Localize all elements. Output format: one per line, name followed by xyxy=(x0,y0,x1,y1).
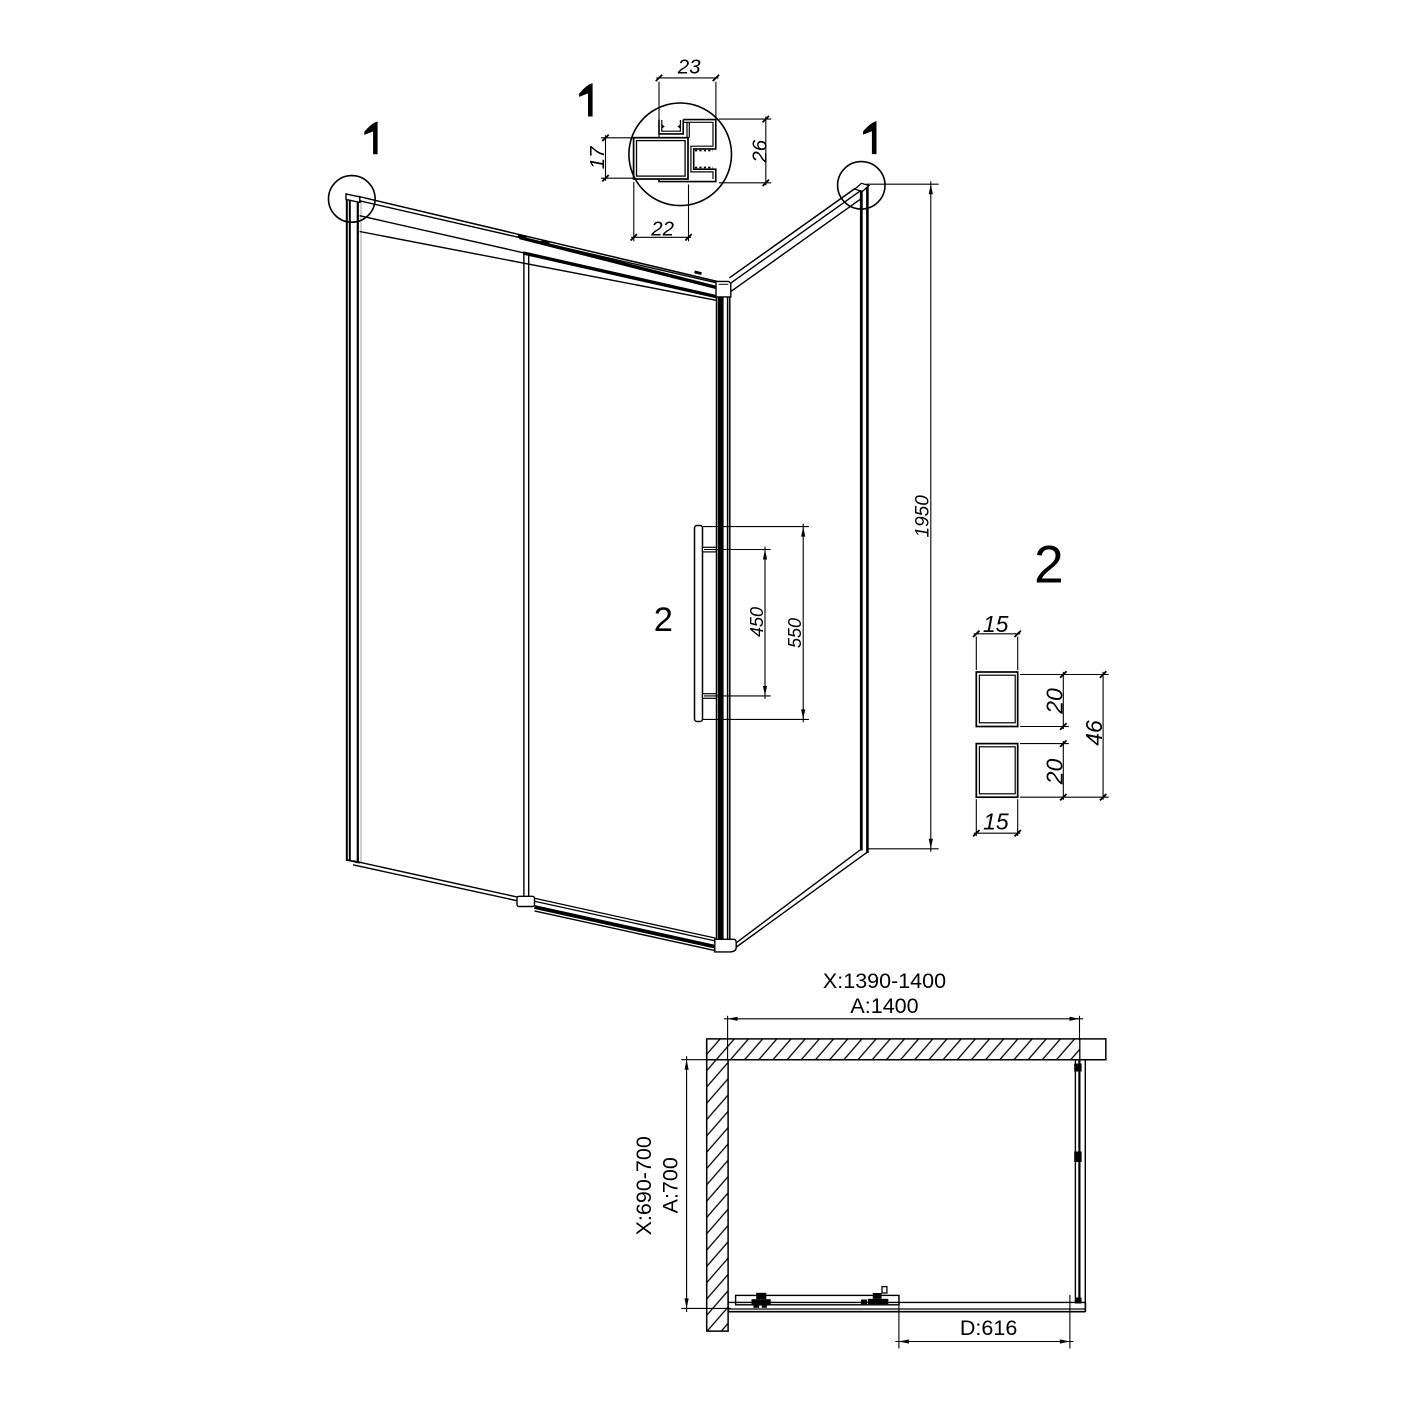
svg-text:20: 20 xyxy=(1042,688,1068,715)
svg-text:450: 450 xyxy=(747,607,767,637)
svg-text:26: 26 xyxy=(748,139,771,163)
svg-text:20: 20 xyxy=(1042,759,1068,786)
svg-text:X:1390-1400: X:1390-1400 xyxy=(823,969,946,993)
svg-text:D:616: D:616 xyxy=(960,1316,1017,1340)
svg-text:A:700: A:700 xyxy=(658,1157,682,1213)
svg-text:550: 550 xyxy=(785,618,805,648)
svg-text:X:690-700: X:690-700 xyxy=(632,1136,656,1235)
svg-text:15: 15 xyxy=(983,611,1009,637)
svg-text:2: 2 xyxy=(654,601,673,639)
svg-text:1950: 1950 xyxy=(913,495,934,538)
svg-text:17: 17 xyxy=(586,145,609,169)
svg-text:15: 15 xyxy=(983,809,1009,835)
svg-text:23: 23 xyxy=(677,56,701,79)
svg-text:A:1400: A:1400 xyxy=(850,994,918,1018)
svg-text:22: 22 xyxy=(650,218,674,241)
svg-text:46: 46 xyxy=(1081,720,1107,746)
svg-text:2: 2 xyxy=(1034,536,1063,595)
